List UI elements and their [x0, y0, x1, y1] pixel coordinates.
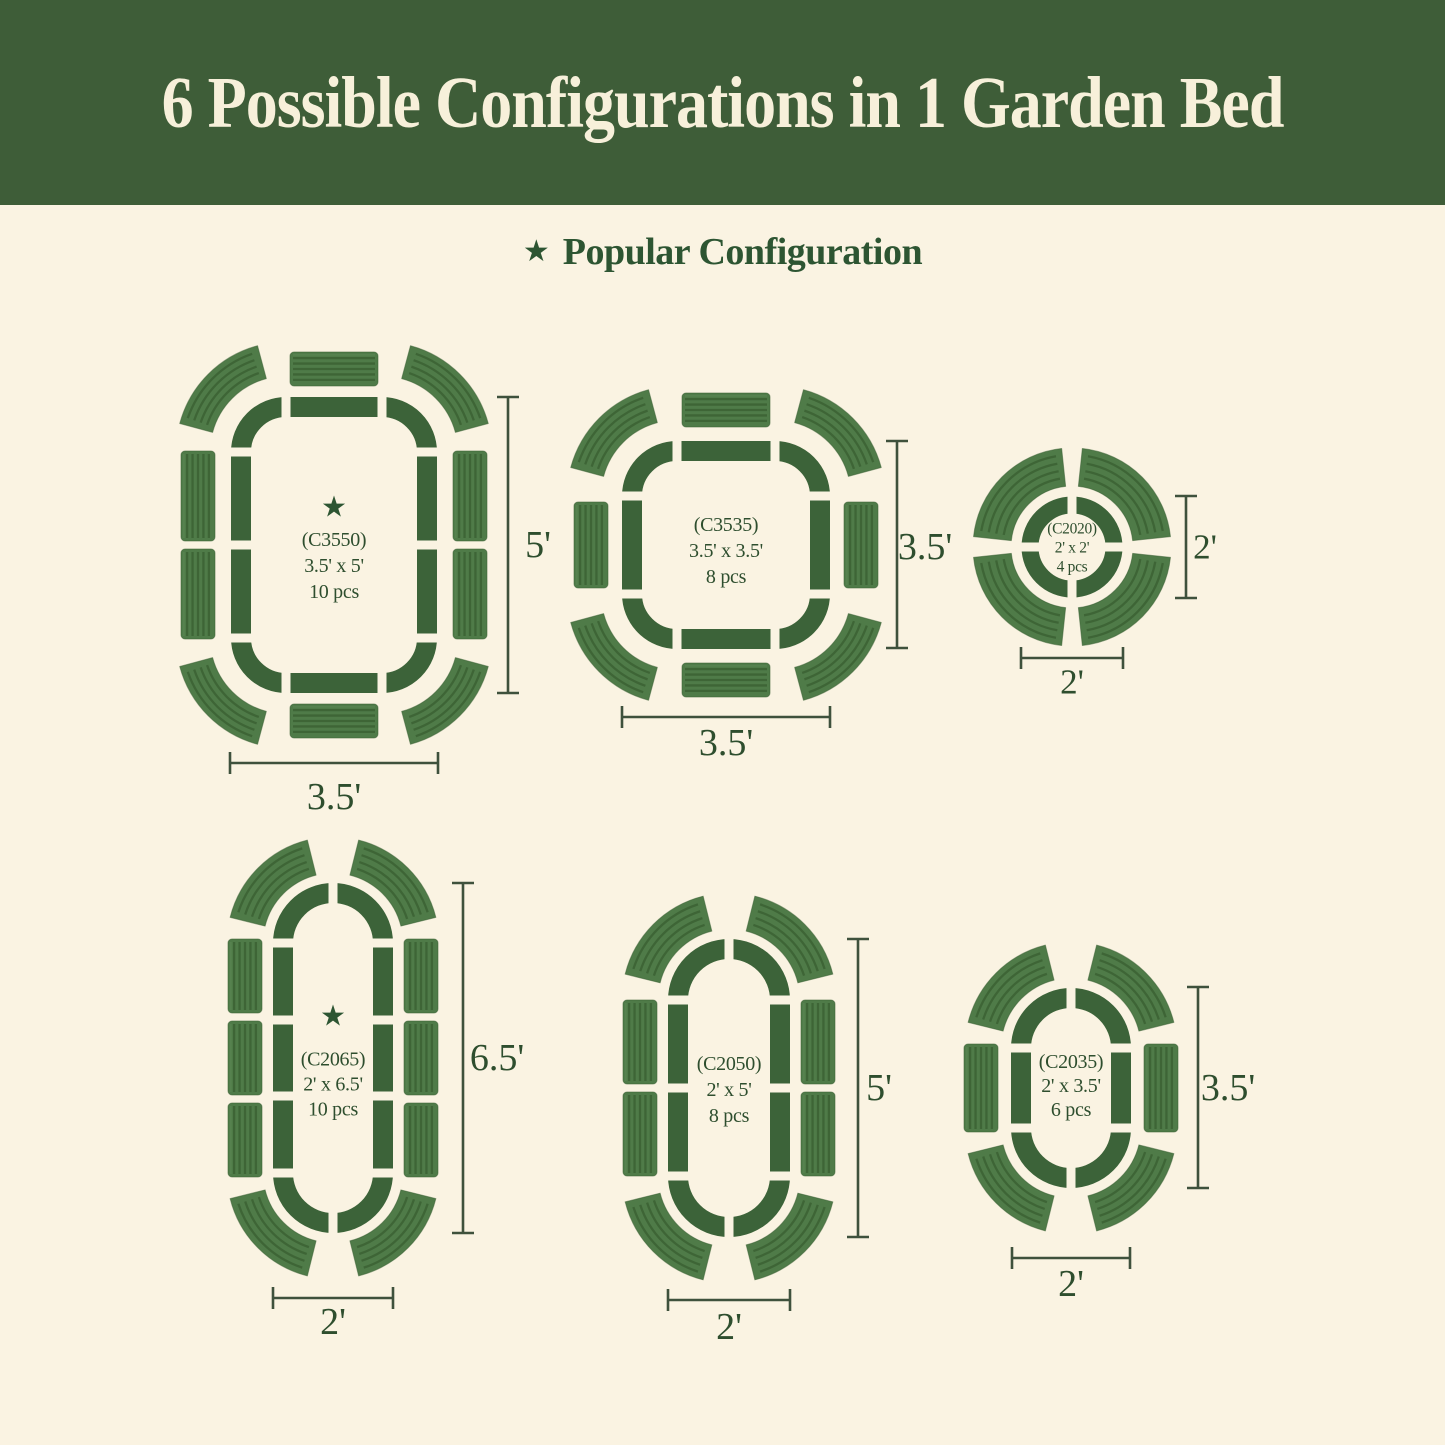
straight-panel — [404, 1103, 438, 1177]
straight-panel — [682, 663, 770, 697]
corner-panel — [795, 390, 882, 477]
straight-panel — [964, 1044, 998, 1132]
dim-bottom-label: 3.5' — [699, 724, 753, 762]
straight-panel — [404, 1021, 438, 1095]
dim-bottom-label: 2' — [1060, 665, 1084, 700]
straight-panel — [228, 939, 262, 1013]
straight-panel — [290, 704, 378, 738]
corner-panel — [350, 840, 436, 926]
corner-panel — [1088, 945, 1174, 1031]
straight-panel — [574, 502, 608, 588]
config-code: (C2065) — [301, 1048, 366, 1073]
corner-panel — [230, 1190, 316, 1276]
config-pieces: 8 pcs — [697, 1103, 762, 1129]
corner-panel — [746, 1193, 833, 1280]
straight-panel — [228, 1021, 262, 1095]
config-label: (C3535) 3.5' x 3.5' 8 pcs — [689, 512, 763, 590]
config-size: 2' x 3.5' — [1039, 1074, 1104, 1098]
legend-label: Popular Configuration — [563, 230, 922, 274]
corner-panel — [571, 390, 658, 477]
corner-panel — [230, 840, 316, 926]
config-code: (C3535) — [689, 512, 763, 538]
dim-bottom-label: 2' — [716, 1308, 742, 1346]
straight-panel — [623, 1092, 657, 1176]
dim-right-label: 5' — [866, 1069, 892, 1107]
straight-panel — [801, 1000, 835, 1084]
config-code: (C2020) — [1047, 520, 1097, 539]
config-size: 2' x 2' — [1047, 539, 1097, 558]
corner-panel — [350, 1190, 436, 1276]
config-pieces: 10 pcs — [302, 579, 367, 605]
corner-panel — [795, 614, 882, 701]
straight-panel — [1144, 1044, 1178, 1132]
config-label: (C2020) 2' x 2' 4 pcs — [1047, 520, 1097, 577]
dim-bottom-label: 2' — [320, 1303, 346, 1341]
config-label: (C2065) 2' x 6.5' 10 pcs — [301, 1048, 366, 1123]
corner-panel — [180, 346, 267, 433]
straight-panel — [453, 451, 487, 541]
config-label: (C2035) 2' x 3.5' 6 pcs — [1039, 1050, 1104, 1122]
dimension-lines — [230, 397, 519, 774]
straight-panel — [844, 502, 878, 588]
corner-panel — [968, 1145, 1054, 1231]
corner-panel — [402, 346, 489, 433]
straight-panel — [181, 549, 215, 639]
corner-panel — [968, 945, 1054, 1031]
config-label: (C3550) 3.5' x 5' 10 pcs — [302, 527, 367, 605]
dim-right-label: 6.5' — [470, 1039, 524, 1077]
popular-star-icon: ★ — [321, 494, 347, 523]
config-size: 2' x 6.5' — [301, 1073, 366, 1098]
straight-panel — [682, 393, 770, 427]
corner-panel — [402, 658, 489, 745]
corner-panel — [571, 614, 658, 701]
straight-panel — [623, 1000, 657, 1084]
infographic-canvas: 6 Possible Configurations in 1 Garden Be… — [0, 0, 1445, 1445]
straight-panel — [181, 451, 215, 541]
straight-panel — [404, 939, 438, 1013]
config-code: (C2050) — [697, 1051, 762, 1077]
config-code: (C2035) — [1039, 1050, 1104, 1074]
config-pieces: 8 pcs — [689, 564, 763, 590]
config-size: 3.5' x 5' — [302, 553, 367, 579]
corner-panel — [625, 1193, 712, 1280]
dim-right-label: 2' — [1193, 530, 1217, 565]
page-title: 6 Possible Configurations in 1 Garden Be… — [162, 60, 1284, 145]
dimension-lines — [1012, 987, 1209, 1269]
corner-panel — [746, 896, 833, 983]
dim-bottom-label: 2' — [1058, 1265, 1084, 1303]
straight-panel — [453, 549, 487, 639]
header-banner: 6 Possible Configurations in 1 Garden Be… — [0, 0, 1445, 205]
config-pieces: 6 pcs — [1039, 1098, 1104, 1122]
dim-right-label: 3.5' — [1201, 1069, 1255, 1107]
star-icon: ★ — [523, 237, 550, 267]
corner-panel — [625, 896, 712, 983]
dim-bottom-label: 3.5' — [307, 778, 361, 816]
popular-star-icon: ★ — [320, 1003, 346, 1032]
dim-right-label: 5' — [525, 526, 551, 564]
corner-panel — [180, 658, 267, 745]
corner-panel — [1088, 1145, 1174, 1231]
config-pieces: 10 pcs — [301, 1098, 366, 1123]
straight-panel — [801, 1092, 835, 1176]
config-size: 3.5' x 3.5' — [689, 538, 763, 564]
straight-panel — [228, 1103, 262, 1177]
config-size: 2' x 5' — [697, 1077, 762, 1103]
config-code: (C3550) — [302, 527, 367, 553]
popular-legend: ★ Popular Configuration — [523, 230, 922, 274]
config-label: (C2050) 2' x 5' 8 pcs — [697, 1051, 762, 1129]
dimension-lines — [622, 441, 908, 728]
config-pieces: 4 pcs — [1047, 558, 1097, 577]
dim-right-label: 3.5' — [898, 528, 952, 566]
straight-panel — [290, 352, 378, 386]
